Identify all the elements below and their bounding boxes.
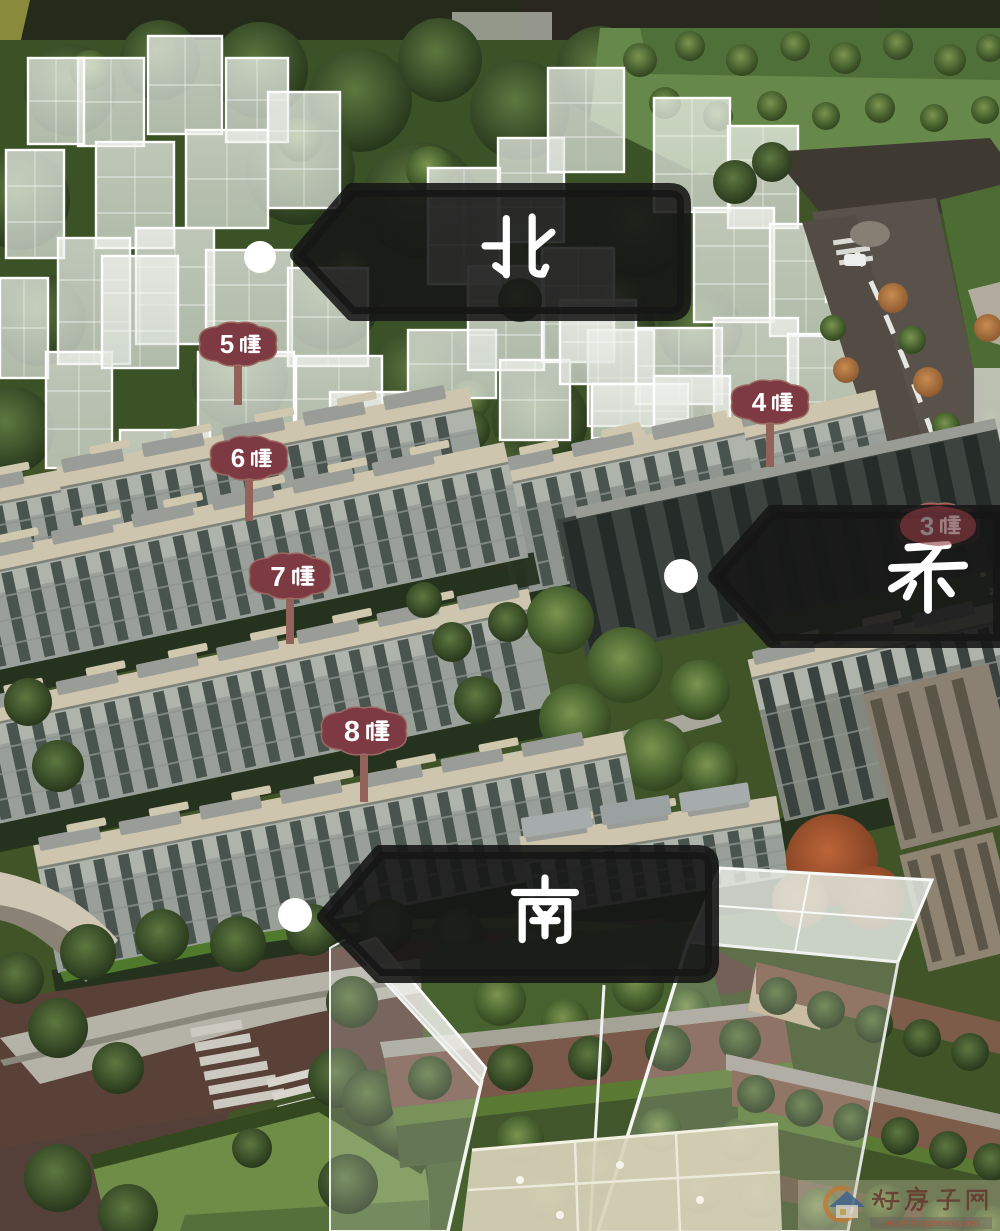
svg-text:3: 3	[920, 511, 934, 541]
svg-text:8: 8	[344, 716, 360, 748]
svg-text:4: 4	[752, 387, 767, 417]
svg-text:7: 7	[270, 561, 286, 592]
svg-text:www.hfangziwang.com: www.hfangziwang.com	[882, 1218, 980, 1229]
svg-text:5: 5	[220, 329, 234, 359]
svg-text:6: 6	[231, 443, 245, 473]
